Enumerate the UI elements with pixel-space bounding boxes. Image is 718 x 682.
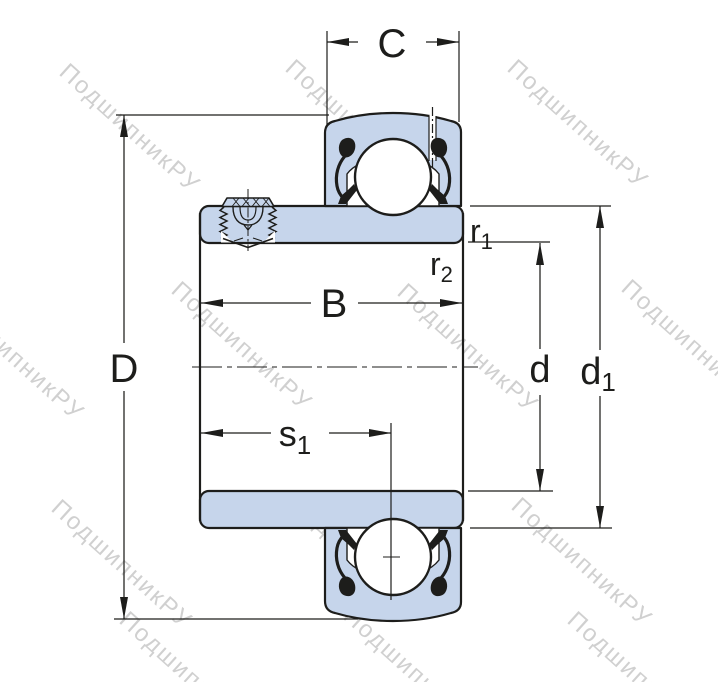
label-C: C xyxy=(378,22,407,66)
label-D: D xyxy=(110,347,139,391)
ball-top xyxy=(355,139,431,215)
sleeve-top-bar xyxy=(200,206,463,243)
watermark-text: ПодшипникРУ xyxy=(46,494,198,634)
bearing-drawing-canvas: ПодшипникРУ ПодшипникРУ ПодшипникРУ Подш… xyxy=(0,0,718,682)
label-r2: r2 xyxy=(430,246,453,287)
watermark-text: ПодшипникРУ xyxy=(166,276,318,416)
label-d1: d1 xyxy=(580,351,616,397)
label-B: B xyxy=(321,282,348,326)
watermark-text: ПодшипникРУ xyxy=(392,278,544,418)
label-d: d xyxy=(529,349,550,391)
bearing-cross-section-diagram: ПодшипникРУ ПодшипникРУ ПодшипникРУ Подш… xyxy=(0,0,718,682)
watermark-text: ПодшипникРУ xyxy=(0,286,90,426)
top-bearing-section xyxy=(325,107,461,215)
label-s1: s1 xyxy=(279,413,311,460)
watermark-text: ПодшипникРУ xyxy=(616,274,718,414)
bottom-bearing-section xyxy=(325,519,461,621)
dim-s1: s1 xyxy=(201,413,391,460)
label-r1: r1 xyxy=(470,213,493,254)
sleeve-bottom-bar xyxy=(200,491,463,528)
watermark-text: ПодшипникРУ xyxy=(54,58,206,198)
lubrication-hole xyxy=(429,107,437,169)
watermark-text: ПодшипникРУ xyxy=(502,54,654,194)
